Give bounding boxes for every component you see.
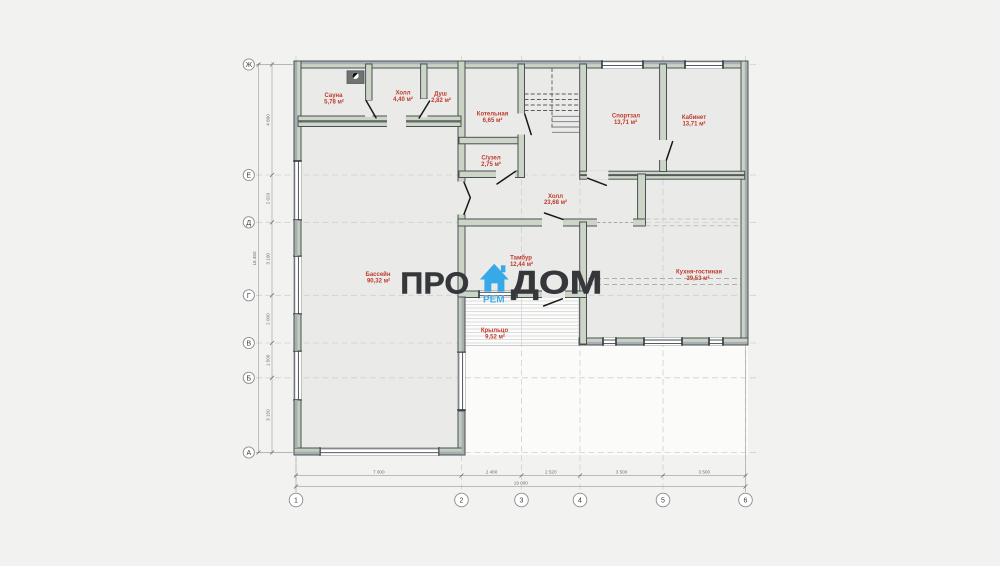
svg-text:90,32 м²: 90,32 м² [367, 277, 390, 284]
svg-text:39,53 м²: 39,53 м² [686, 275, 709, 282]
svg-text:16 450: 16 450 [252, 251, 257, 265]
svg-text:4: 4 [578, 498, 582, 505]
svg-text:Крыльцо: Крыльцо [481, 328, 509, 334]
svg-text:Котельная: Котельная [477, 112, 509, 118]
svg-text:Душ: Душ [434, 92, 447, 98]
svg-text:6,65 м²: 6,65 м² [483, 117, 503, 124]
svg-text:Холл: Холл [548, 194, 563, 200]
svg-text:1 500: 1 500 [266, 354, 271, 366]
svg-text:2 480: 2 480 [486, 470, 498, 475]
svg-text:3 150: 3 150 [266, 409, 271, 421]
svg-text:Ж: Ж [246, 62, 253, 69]
svg-text:Б: Б [247, 375, 252, 382]
svg-text:3 500: 3 500 [616, 470, 628, 475]
svg-text:2: 2 [460, 498, 464, 505]
svg-text:Тамбур: Тамбур [510, 255, 532, 262]
svg-text:ПРО: ПРО [400, 265, 469, 300]
svg-text:6: 6 [744, 498, 748, 505]
svg-text:2 000: 2 000 [266, 313, 271, 325]
svg-text:4 680: 4 680 [266, 114, 271, 126]
svg-text:23,68 м²: 23,68 м² [544, 199, 567, 206]
svg-text:2,82 м²: 2,82 м² [431, 97, 451, 104]
svg-text:Кабинет: Кабинет [682, 114, 706, 121]
svg-text:2 020: 2 020 [266, 192, 271, 204]
svg-text:Холл: Холл [395, 91, 410, 97]
svg-text:Спортзал: Спортзал [612, 114, 640, 120]
svg-text:Г: Г [247, 293, 251, 300]
svg-text:Сауна: Сауна [324, 93, 343, 99]
svg-text:Д: Д [246, 220, 251, 227]
svg-text:2 520: 2 520 [545, 470, 557, 475]
svg-text:А: А [246, 450, 251, 457]
svg-text:9,52 м²: 9,52 м² [485, 333, 505, 340]
svg-text:13,71 м²: 13,71 м² [682, 120, 705, 127]
svg-text:ДОМ: ДОМ [511, 264, 603, 301]
svg-text:Бассейн: Бассейн [366, 271, 391, 278]
svg-text:3 100: 3 100 [266, 253, 271, 265]
svg-text:В: В [246, 341, 251, 348]
svg-text:7 000: 7 000 [373, 470, 385, 475]
svg-text:РЕМ: РЕМ [483, 295, 505, 306]
svg-text:19 000: 19 000 [514, 481, 528, 486]
svg-text:5: 5 [661, 498, 665, 505]
svg-text:3 500: 3 500 [699, 470, 711, 475]
svg-text:13,71 м²: 13,71 м² [614, 119, 637, 126]
svg-text:С/узел: С/узел [481, 156, 500, 162]
svg-text:Кухня-гостиная: Кухня-гостиная [676, 270, 722, 276]
svg-text:3: 3 [520, 498, 524, 505]
svg-text:1: 1 [294, 498, 298, 505]
svg-text:5,78 м²: 5,78 м² [324, 98, 344, 105]
svg-text:4,40 м²: 4,40 м² [393, 96, 413, 103]
svg-text:2,75 м²: 2,75 м² [481, 161, 501, 168]
svg-text:Е: Е [246, 173, 251, 180]
